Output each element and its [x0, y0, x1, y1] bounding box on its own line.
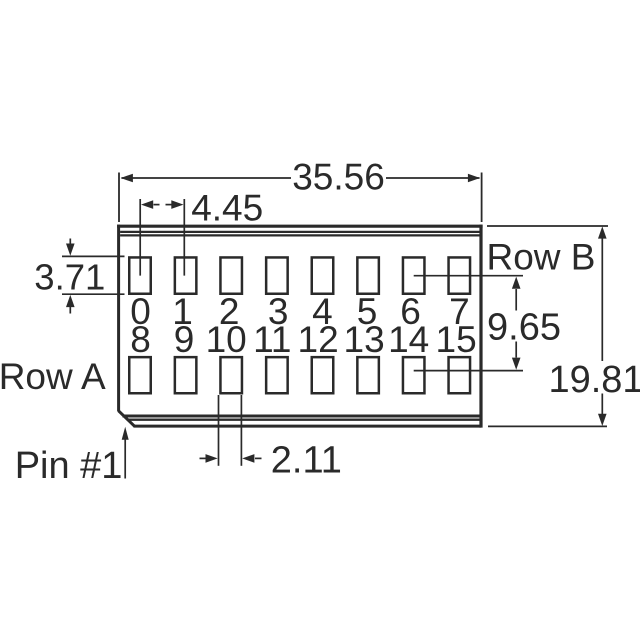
svg-text:Row B: Row B — [487, 237, 596, 278]
svg-text:15: 15 — [436, 319, 477, 360]
svg-text:11: 11 — [253, 319, 291, 360]
svg-text:4.45: 4.45 — [191, 188, 263, 229]
svg-text:13: 13 — [344, 319, 385, 360]
svg-text:19.81: 19.81 — [548, 359, 640, 401]
svg-text:14: 14 — [388, 319, 429, 360]
svg-text:35.56: 35.56 — [292, 157, 385, 198]
svg-text:3.71: 3.71 — [34, 256, 105, 297]
svg-text:2.11: 2.11 — [271, 440, 342, 482]
svg-text:9.65: 9.65 — [487, 307, 561, 349]
svg-text:10: 10 — [206, 319, 247, 360]
svg-text:Pin #1: Pin #1 — [15, 445, 123, 487]
svg-text:8: 8 — [130, 319, 151, 360]
svg-text:12: 12 — [298, 319, 339, 360]
svg-text:9: 9 — [174, 319, 195, 360]
svg-text:Row A: Row A — [0, 356, 106, 397]
